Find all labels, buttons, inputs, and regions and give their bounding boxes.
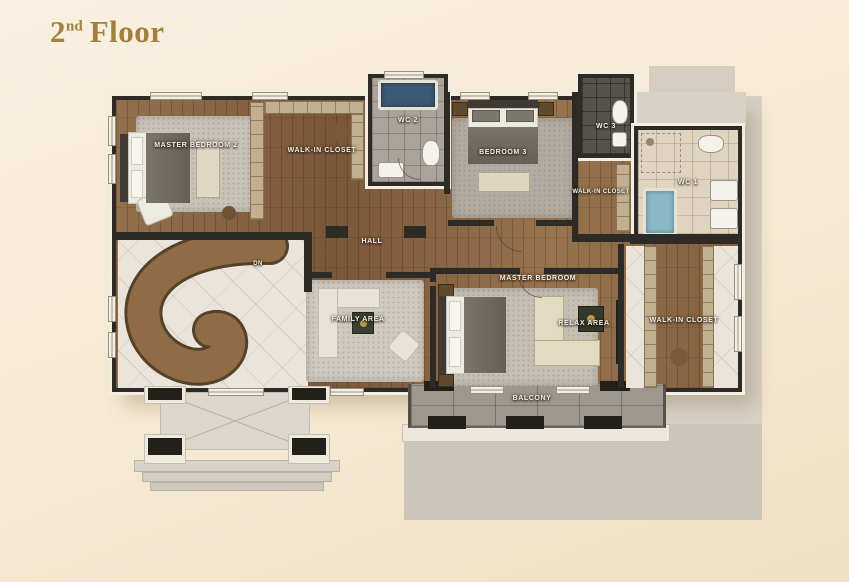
wc1-bottom-wall [630,234,742,244]
family-top-wall-2 [386,272,430,278]
room-label-master-bedroom: MASTER BEDROOM [476,275,600,282]
master-bedroom-pillow-2 [449,337,461,367]
window-left-4 [108,332,116,358]
bedroom-3-bench [478,172,530,192]
window-top-3 [460,92,490,100]
master-bedroom-headboard [438,296,446,374]
room-label-hall: HALL [348,238,396,245]
stairs-down-label: DN [244,261,272,267]
window-family-bottom [330,388,364,396]
window-top-4 [528,92,558,100]
wc2-bathtub [378,80,438,110]
title-ordinal: nd [66,19,83,35]
window-right-1 [734,264,742,300]
wc1-vanity-sink-2 [710,208,738,229]
bedroom-3-nightstand-2 [538,102,554,116]
curved-staircase [118,240,308,388]
bedroom-3-pillow-2 [506,110,534,122]
balcony-bracket-bottom-3 [584,416,622,429]
wc1-shower-head-icon [646,138,654,146]
room-label-wc3: WC 3 [578,123,634,130]
hall-stub-right [404,226,426,238]
closet-top-pouf [330,124,348,142]
floor-plan-canvas: 2ndFloor [0,0,849,582]
window-wc2 [384,71,424,79]
master-bedroom-2-headboard [120,134,128,202]
master-top-wall-2 [544,268,624,274]
relax-area-sofa-horizontal [534,340,600,366]
bedroom3-bottom-wall-1 [448,220,494,226]
family-area-sofa-left [318,288,338,358]
closet-master-pouf [670,348,688,366]
closet-mid-bottom-wall [576,234,636,242]
wc1-toilet [698,135,724,153]
porch-column-bottom-left [148,438,182,455]
bedroom3-right-wall [572,92,578,242]
room-label-relax-area: RELAX AREA [546,320,622,327]
master-closet-wall [618,244,624,388]
master-bedroom-pillow-1 [449,301,461,331]
room-label-bedroom-3: BEDROOM 3 [453,149,553,156]
balcony-bracket-bottom-1 [428,416,466,429]
wc3-sink [612,132,627,147]
room-label-balcony: BALCONY [490,395,574,402]
master-bedroom-nightstand-2 [438,374,454,387]
window-left-1 [108,116,116,146]
bedroom3-left-wall [444,92,450,194]
window-top-1 [150,92,202,100]
stair-void [118,240,308,388]
window-right-2 [734,316,742,352]
master-bedroom-duvet [464,297,506,373]
window-top-2 [252,92,288,100]
balcony-door-2 [556,386,590,394]
porch-door [208,388,264,396]
room-label-walk-in-closet-top: WALK-IN CLOSET [272,147,372,154]
stair-void-top-wall [114,232,312,240]
porch-column-top-right [292,388,326,400]
bedroom-3-headboard [468,100,538,108]
family-top-wall-1 [306,272,332,278]
wc2-toilet [422,140,440,166]
balcony-bracket-bottom-2 [506,416,544,429]
bedroom-3-duvet [468,127,538,164]
window-left-2 [108,154,116,184]
family-master-wall [430,286,436,388]
porch-column-top-left [148,388,182,400]
stair-void-right-wall [304,240,312,292]
balcony-door-1 [470,386,504,394]
closet-top-wardrobe-top [264,101,364,114]
porch-step-2 [142,472,332,482]
wc3-toilet [612,100,628,124]
room-label-master-bedroom-2: MASTER BEDROOM 2 [134,142,258,149]
master-bedroom-2-pillow-2 [131,170,143,198]
hall-stub-left [326,226,348,238]
wc3-room [578,74,634,158]
closet-top-wardrobe-left [250,102,264,220]
room-label-wc2: WC 2 [378,117,438,124]
room-label-wc1: WC 1 [656,179,720,186]
title-number: 2 [50,14,66,49]
room-label-family-area: FAMILY AREA [316,316,400,323]
wc1-bathtub [643,188,677,236]
bedroom-3-nightstand-1 [452,102,468,116]
master-bedroom-2-side-table [222,206,236,220]
bedroom3-bottom-wall-2 [536,220,574,226]
room-label-walk-in-closet-mid: WALK-IN CLOSET [563,189,639,195]
porch-step-3 [150,482,324,491]
window-left-3 [108,296,116,322]
bedroom-3-pillow-1 [472,110,500,122]
porch-column-bottom-right [292,438,326,455]
title-word: Floor [90,14,165,49]
page-title: 2ndFloor [50,14,165,50]
closet-mid-wardrobe [616,164,630,232]
roof-patch [634,92,746,126]
master-top-wall-1 [436,268,520,274]
room-label-walk-in-closet-master: WALK-IN CLOSET [634,317,734,324]
